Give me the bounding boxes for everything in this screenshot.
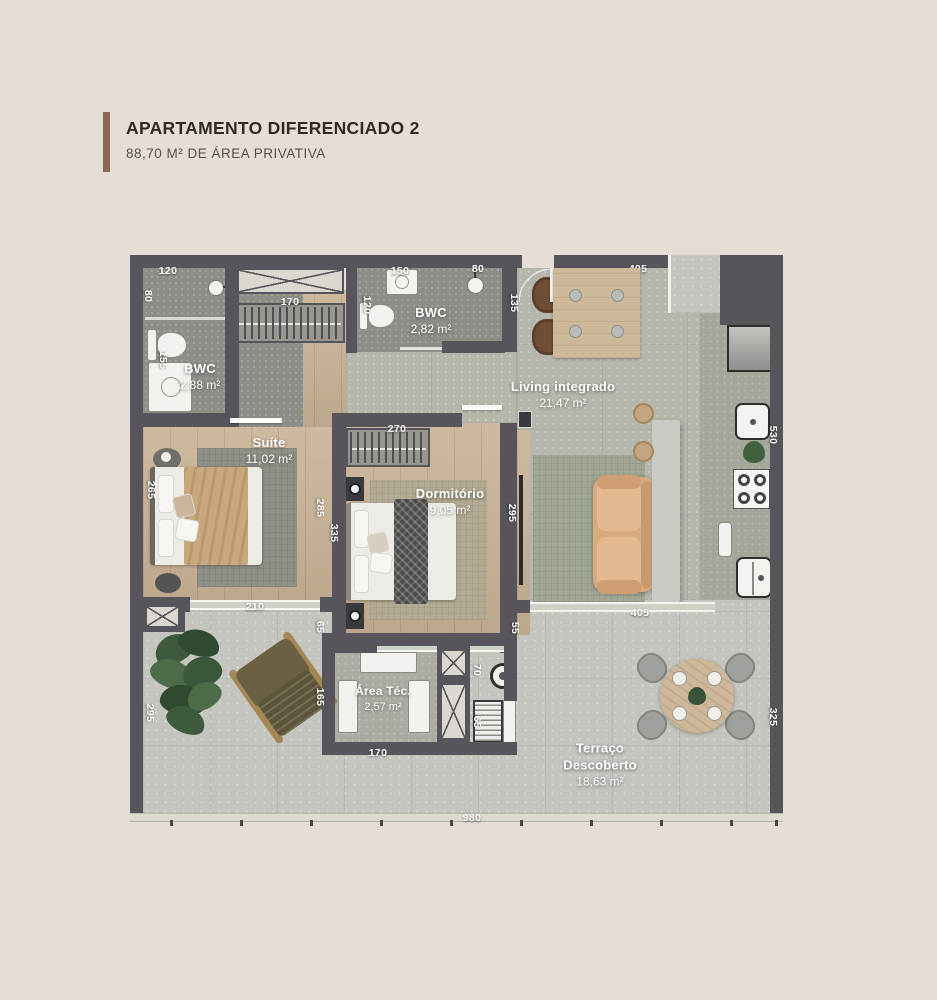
wall-segment: [332, 413, 462, 427]
kitchen-sink: [736, 557, 772, 598]
wall-segment: [322, 633, 517, 646]
floor-window-recess: [670, 255, 720, 313]
cooktop: [733, 469, 770, 509]
dorm-bed: [346, 503, 456, 600]
shower-head-icon: [208, 280, 224, 296]
wall-segment: [130, 255, 143, 813]
tv: [519, 475, 523, 585]
shaft-hatch: [236, 268, 344, 294]
toilet-tank: [147, 329, 157, 361]
wall-segment: [517, 600, 530, 613]
toilet-bowl: [157, 332, 187, 358]
page-subtitle: 88,70 M² DE ÁREA PRIVATIVA: [126, 146, 326, 161]
railing-post: [170, 820, 173, 826]
railing-post: [660, 820, 663, 826]
wall-segment: [320, 597, 346, 612]
plant-icon: [743, 441, 765, 463]
grill-cabinet: [503, 700, 516, 743]
terrace-table: [660, 659, 734, 733]
dorm-door-leaf: [462, 405, 502, 410]
wall-speaker: [346, 603, 364, 629]
floor-plan: BWC2,88 m² BWC2,82 m² Suíte11,02 m² Dorm…: [130, 255, 790, 830]
railing-post: [450, 820, 453, 826]
tableware: [569, 325, 582, 338]
living-glass-door: [530, 602, 715, 612]
wall-segment: [322, 646, 335, 755]
tableware: [569, 289, 582, 302]
page-title: APARTAMENTO DIFERENCIADO 2: [126, 118, 420, 139]
door-swing-arc: [519, 269, 552, 302]
page: APARTAMENTO DIFERENCIADO 2 88,70 M² DE Á…: [0, 0, 937, 1000]
tableware: [611, 325, 624, 338]
wall-segment: [502, 255, 517, 352]
suite-glass-door: [190, 600, 320, 610]
kitchen-island: [652, 420, 680, 602]
dining-table: [553, 268, 640, 358]
suite-bed: [150, 467, 262, 565]
ac-unit: [408, 680, 430, 733]
bwc2-sink: [386, 269, 418, 295]
toilet-tank: [359, 302, 368, 330]
shaft-hatch: [145, 605, 180, 628]
suite-lamp: [161, 452, 171, 462]
toilet-bowl: [368, 304, 395, 328]
shower-glass: [145, 317, 225, 320]
bwc1-vanity: [148, 362, 192, 412]
shaft-hatch: [440, 683, 467, 740]
railing-post: [240, 820, 243, 826]
wall-segment: [332, 423, 346, 653]
railing-post: [590, 820, 593, 826]
railing-post: [380, 820, 383, 826]
shower-head-icon: [467, 277, 484, 294]
wall-segment: [346, 267, 357, 353]
door-leaf: [230, 418, 282, 423]
dorm-wardrobe: [346, 428, 430, 467]
wall-speaker: [346, 477, 364, 501]
wall-segment: [500, 423, 517, 653]
wall-segment: [225, 268, 239, 427]
wall-segment: [770, 255, 783, 813]
wall-segment: [554, 255, 670, 268]
grill: [473, 700, 503, 743]
wall-art: [518, 411, 532, 428]
shaft-hatch: [440, 649, 467, 677]
wall-segment: [322, 742, 517, 755]
tableware: [611, 289, 624, 302]
appliance: [718, 522, 732, 557]
stool: [633, 403, 654, 424]
ac-unit: [360, 652, 417, 673]
wall-segment: [143, 413, 227, 427]
kitchen-sink: [735, 403, 770, 440]
stool: [633, 441, 654, 462]
railing-post: [775, 820, 778, 826]
fridge: [727, 325, 772, 372]
accent-bar: [103, 112, 110, 172]
wall-segment: [504, 646, 517, 701]
suite-closet: [233, 303, 345, 343]
wall-segment: [442, 341, 505, 353]
shower-shelf: [400, 347, 442, 350]
suite-stool: [155, 573, 181, 593]
wall-segment: [143, 255, 522, 268]
glass-railing: [130, 813, 783, 822]
railing-post: [310, 820, 313, 826]
railing-post: [520, 820, 523, 826]
railing-post: [730, 820, 733, 826]
window-glass: [668, 255, 671, 313]
sofa: [593, 477, 655, 592]
